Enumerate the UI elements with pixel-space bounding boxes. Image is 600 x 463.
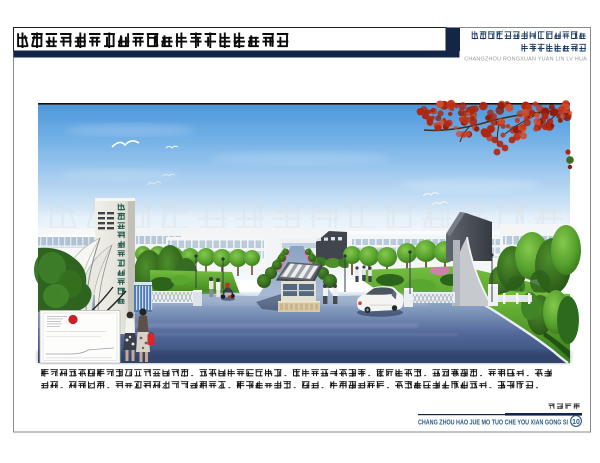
svg-text:CHANGZHOU RONGXUAN YUAN LIN LV: CHANGZHOU RONGXUAN YUAN LIN LV HUA bbox=[464, 57, 587, 63]
svg-text:10: 10 bbox=[572, 419, 580, 426]
svg-text:CHANG ZHOU HAO JUE MO TUO CHE: CHANG ZHOU HAO JUE MO TUO CHE YOU XIAN G… bbox=[418, 418, 568, 427]
